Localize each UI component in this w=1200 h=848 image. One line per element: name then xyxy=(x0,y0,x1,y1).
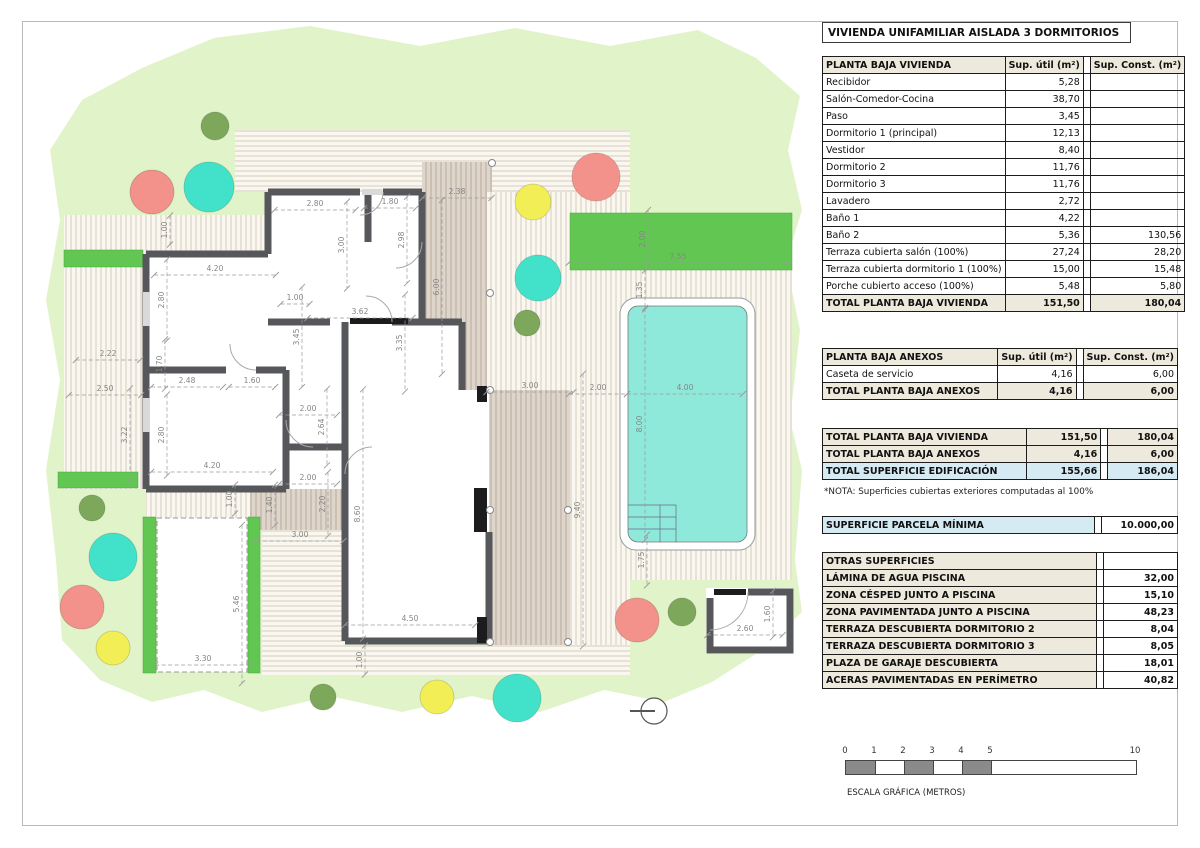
otras-header-value xyxy=(1103,553,1177,570)
sup-const-value: 130,56 xyxy=(1090,227,1184,244)
table-row: Caseta de servicio4,166,00 xyxy=(823,366,1178,383)
dim-label: 4.20 xyxy=(204,461,221,470)
dim-label: 2.80 xyxy=(157,291,166,308)
superficie-value: 8,04 xyxy=(1103,621,1177,638)
dim-label: 8.60 xyxy=(353,505,362,522)
sup-const-value xyxy=(1090,108,1184,125)
table-row: Lavadero2,72 xyxy=(823,193,1185,210)
table-row: PLANTA BAJA ANEXOSSup. útil (m²)Sup. Con… xyxy=(823,349,1178,366)
scale-tick: 3 xyxy=(929,746,934,756)
cell xyxy=(1101,429,1108,446)
sup-util-value: 5,48 xyxy=(1005,278,1083,295)
dim-label: 1.35 xyxy=(635,281,644,298)
total-util: 151,50 xyxy=(1026,429,1100,446)
sup-const-value: 6,00 xyxy=(1083,366,1177,383)
total-label: TOTAL SUPERFICIE EDIFICACIÓN xyxy=(823,463,1027,480)
total-label: TOTAL PLANTA BAJA ANEXOS xyxy=(823,446,1027,463)
table-row: Dormitorio 311,76 xyxy=(823,176,1185,193)
tree-teal xyxy=(493,674,541,722)
total-label: TOTAL PLANTA BAJA VIVIENDA xyxy=(823,295,1006,312)
dim-label: 1.80 xyxy=(382,197,399,206)
tree-olive xyxy=(668,598,696,626)
cell xyxy=(1083,142,1090,159)
dim-label: 2.20 xyxy=(318,495,327,512)
total-const: 180,04 xyxy=(1108,429,1178,446)
table-row: ZONA CÉSPED JUNTO A PISCINA15,10 xyxy=(823,587,1178,604)
terraza-salon xyxy=(487,390,570,645)
tree-yellow xyxy=(420,680,454,714)
post xyxy=(565,507,572,514)
post xyxy=(487,507,494,514)
dim-label: 1.60 xyxy=(763,605,772,622)
cell xyxy=(1076,349,1083,366)
cell xyxy=(1083,176,1090,193)
scale-caption: ESCALA GRÁFICA (METROS) xyxy=(847,788,965,798)
scale-tick: 10 xyxy=(1130,746,1141,756)
sup-util-value: 11,76 xyxy=(1005,176,1083,193)
dim-label: 1.00 xyxy=(225,490,234,507)
table-planta-baja-anexos: PLANTA BAJA ANEXOSSup. útil (m²)Sup. Con… xyxy=(822,348,1178,400)
sheet-title: VIVIENDA UNIFAMILIAR AISLADA 3 DORMITORI… xyxy=(822,22,1131,43)
dim-label: 2.98 xyxy=(397,231,406,248)
table-row: TOTAL PLANTA BAJA ANEXOS4,166,00 xyxy=(823,446,1178,463)
parcela-value: 10.000,00 xyxy=(1102,517,1178,534)
dim-label: 3.00 xyxy=(522,381,539,390)
room-label: Caseta de servicio xyxy=(823,366,998,383)
dim-label: 2.80 xyxy=(157,426,166,443)
sup-const-value xyxy=(1090,193,1184,210)
tree-teal xyxy=(89,533,137,581)
superficie-label: ZONA PAVIMENTADA JUNTO A PISCINA xyxy=(823,604,1097,621)
total-util: 4,16 xyxy=(998,383,1076,400)
superficie-value: 48,23 xyxy=(1103,604,1177,621)
total-label: TOTAL PLANTA BAJA ANEXOS xyxy=(823,383,998,400)
table-row: Dormitorio 211,76 xyxy=(823,159,1185,176)
scale-tick: 5 xyxy=(987,746,992,756)
cell xyxy=(1096,655,1103,672)
tree-teal xyxy=(184,162,234,212)
cell xyxy=(1083,57,1090,74)
sup-util-value: 4,16 xyxy=(998,366,1076,383)
sup-util-value: 8,40 xyxy=(1005,142,1083,159)
sup-util-value: 3,45 xyxy=(1005,108,1083,125)
table-row: OTRAS SUPERFICIES xyxy=(823,553,1178,570)
total-util: 151,50 xyxy=(1005,295,1083,312)
cell xyxy=(1076,366,1083,383)
scale-segment xyxy=(846,761,875,774)
sup-const-value xyxy=(1090,74,1184,91)
dim-label: 1.40 xyxy=(265,496,274,513)
dim-label: 7.55 xyxy=(670,252,687,261)
tree-olive xyxy=(514,310,540,336)
total-label: TOTAL PLANTA BAJA VIVIENDA xyxy=(823,429,1027,446)
dim-label: 3.35 xyxy=(395,334,404,351)
sup-util-value: 5,28 xyxy=(1005,74,1083,91)
col-header-const: Sup. Const. (m²) xyxy=(1090,57,1184,74)
sup-util-value: 11,76 xyxy=(1005,159,1083,176)
table-totales: TOTAL PLANTA BAJA VIVIENDA151,50180,04TO… xyxy=(822,428,1178,480)
total-util: 4,16 xyxy=(1026,446,1100,463)
sup-util-value: 38,70 xyxy=(1005,91,1083,108)
site-plan: 2.382.801.803.002.981.004.202.801.003.62… xyxy=(0,0,820,848)
col-header-const: Sup. Const. (m²) xyxy=(1083,349,1177,366)
table-row: Terraza cubierta salón (100%)27,2428,20 xyxy=(823,244,1185,261)
tree-olive xyxy=(201,112,229,140)
superficie-value: 8,05 xyxy=(1103,638,1177,655)
sup-const-value: 28,20 xyxy=(1090,244,1184,261)
block-header: PLANTA BAJA VIVIENDA xyxy=(823,57,1006,74)
dim-label: 2.00 xyxy=(300,404,317,413)
cell xyxy=(1096,621,1103,638)
dim-label: 2.00 xyxy=(638,230,647,247)
graphic-scale: 01234510 ESCALA GRÁFICA (METROS) xyxy=(845,746,1145,802)
cell xyxy=(1096,672,1103,689)
dim-label: 1.00 xyxy=(160,221,169,238)
sup-const-value xyxy=(1090,210,1184,227)
scale-divider xyxy=(904,761,905,774)
table-row: Dormitorio 1 (principal)12,13 xyxy=(823,125,1185,142)
post xyxy=(487,387,494,394)
caseta-floor xyxy=(706,588,794,654)
sup-util-value: 5,36 xyxy=(1005,227,1083,244)
table-row: LÁMINA DE AGUA PISCINA32,00 xyxy=(823,570,1178,587)
cell xyxy=(1083,125,1090,142)
table-row: Terraza cubierta dormitorio 1 (100%)15,0… xyxy=(823,261,1185,278)
dim-label: 1.60 xyxy=(244,376,261,385)
superficie-value: 32,00 xyxy=(1103,570,1177,587)
scale-segment xyxy=(904,761,933,774)
cell xyxy=(1076,383,1083,400)
dim-label: 2.60 xyxy=(737,624,754,633)
room-label: Vestidor xyxy=(823,142,1006,159)
cell xyxy=(1083,74,1090,91)
superficie-label: ZONA CÉSPED JUNTO A PISCINA xyxy=(823,587,1097,604)
tree-red xyxy=(130,170,174,214)
total-const: 180,04 xyxy=(1090,295,1184,312)
otras-header: OTRAS SUPERFICIES xyxy=(823,553,1097,570)
post xyxy=(565,639,572,646)
dim-label: 3.45 xyxy=(292,328,301,345)
cell xyxy=(1096,638,1103,655)
room-label: Paso xyxy=(823,108,1006,125)
table-row: ACERAS PAVIMENTADAS EN PERÍMETRO40,82 xyxy=(823,672,1178,689)
table-row: TOTAL PLANTA BAJA VIVIENDA151,50180,04 xyxy=(823,429,1178,446)
plaza-garaje xyxy=(157,518,247,672)
superficie-label: LÁMINA DE AGUA PISCINA xyxy=(823,570,1097,587)
sup-const-value xyxy=(1090,125,1184,142)
north-symbol-icon xyxy=(630,698,667,724)
table-parcela-minima: SUPERFICIE PARCELA MÍNIMA 10.000,00 xyxy=(822,516,1178,534)
superficie-label: TERRAZA DESCUBIERTA DORMITORIO 3 xyxy=(823,638,1097,655)
table-row: ZONA PAVIMENTADA JUNTO A PISCINA48,23 xyxy=(823,604,1178,621)
dim-label: 9.40 xyxy=(573,501,582,518)
scale-tick: 0 xyxy=(842,746,847,756)
cell xyxy=(1083,193,1090,210)
sup-const-value: 15,48 xyxy=(1090,261,1184,278)
total-const: 186,04 xyxy=(1108,463,1178,480)
post xyxy=(487,290,494,297)
sup-const-value xyxy=(1090,176,1184,193)
cell xyxy=(1101,463,1108,480)
dim-label: 3.00 xyxy=(292,530,309,539)
room-label: Lavadero xyxy=(823,193,1006,210)
table-row: TERRAZA DESCUBIERTA DORMITORIO 28,04 xyxy=(823,621,1178,638)
scale-segment xyxy=(962,761,991,774)
superficie-label: TERRAZA DESCUBIERTA DORMITORIO 2 xyxy=(823,621,1097,638)
cell xyxy=(1083,210,1090,227)
tree-red xyxy=(60,585,104,629)
cell xyxy=(1083,227,1090,244)
total-util: 155,66 xyxy=(1026,463,1100,480)
superficie-value: 40,82 xyxy=(1103,672,1177,689)
dim-label: 2.00 xyxy=(300,473,317,482)
block-header: PLANTA BAJA ANEXOS xyxy=(823,349,998,366)
cell xyxy=(1096,587,1103,604)
sup-const-value xyxy=(1090,159,1184,176)
post xyxy=(487,639,494,646)
tree-olive xyxy=(79,495,105,521)
superficie-value: 18,01 xyxy=(1103,655,1177,672)
sup-const-value xyxy=(1090,142,1184,159)
table-planta-baja-vivienda: PLANTA BAJA VIVIENDASup. útil (m²)Sup. C… xyxy=(822,56,1185,312)
dim-label: 2.50 xyxy=(97,384,114,393)
post xyxy=(489,160,496,167)
tree-red xyxy=(615,598,659,642)
table-row: Recibidor5,28 xyxy=(823,74,1185,91)
cell xyxy=(1096,604,1103,621)
room-label: Salón-Comedor-Cocina xyxy=(823,91,1006,108)
scale-tick: 2 xyxy=(900,746,905,756)
table-row: Salón-Comedor-Cocina38,70 xyxy=(823,91,1185,108)
table-row: PLAZA DE GARAJE DESCUBIERTA18,01 xyxy=(823,655,1178,672)
drawing-sheet: { "title": "VIVIENDA UNIFAMILIAR AISLADA… xyxy=(0,0,1200,848)
dim-label: 6.00 xyxy=(432,278,441,295)
cell xyxy=(1096,553,1103,570)
dim-label: 2.22 xyxy=(100,349,117,358)
cell xyxy=(1096,570,1103,587)
table-row: TOTAL PLANTA BAJA ANEXOS4,166,00 xyxy=(823,383,1178,400)
superficie-label: PLAZA DE GARAJE DESCUBIERTA xyxy=(823,655,1097,672)
tree-teal xyxy=(515,255,561,301)
room-label: Recibidor xyxy=(823,74,1006,91)
dim-label: 4.20 xyxy=(207,264,224,273)
dim-label: 8.00 xyxy=(635,415,644,432)
table-row: TERRAZA DESCUBIERTA DORMITORIO 38,05 xyxy=(823,638,1178,655)
sup-util-value: 27,24 xyxy=(1005,244,1083,261)
dim-label: 4.50 xyxy=(402,614,419,623)
table-row: Vestidor8,40 xyxy=(823,142,1185,159)
superficie-label: ACERAS PAVIMENTADAS EN PERÍMETRO xyxy=(823,672,1097,689)
table-row: Paso3,45 xyxy=(823,108,1185,125)
dim-label: 2.00 xyxy=(590,383,607,392)
room-label: Terraza cubierta dormitorio 1 (100%) xyxy=(823,261,1006,278)
sup-util-value: 4,22 xyxy=(1005,210,1083,227)
total-const: 6,00 xyxy=(1083,383,1177,400)
total-const: 6,00 xyxy=(1108,446,1178,463)
dim-label: 3.30 xyxy=(195,654,212,663)
sup-util-value: 12,13 xyxy=(1005,125,1083,142)
tree-olive xyxy=(310,684,336,710)
table-row: Baño 25,36130,56 xyxy=(823,227,1185,244)
cell xyxy=(1083,244,1090,261)
dim-label: 1.00 xyxy=(355,651,364,668)
room-label: Dormitorio 1 (principal) xyxy=(823,125,1006,142)
dim-label: 2.80 xyxy=(307,199,324,208)
dim-label: 2.48 xyxy=(179,376,196,385)
scale-divider xyxy=(933,761,934,774)
room-label: Dormitorio 3 xyxy=(823,176,1006,193)
cell xyxy=(1083,261,1090,278)
cell xyxy=(1083,278,1090,295)
col-header-util: Sup. útil (m²) xyxy=(998,349,1076,366)
dim-label: 1.75 xyxy=(637,551,646,568)
table-row: TOTAL SUPERFICIE EDIFICACIÓN155,66186,04 xyxy=(823,463,1178,480)
scale-tick: 1 xyxy=(871,746,876,756)
dim-label: 3.00 xyxy=(337,236,346,253)
scale-tick-labels: 01234510 xyxy=(845,746,1145,757)
col-header-util: Sup. útil (m²) xyxy=(1005,57,1083,74)
room-label: Porche cubierto acceso (100%) xyxy=(823,278,1006,295)
room-label: Baño 1 xyxy=(823,210,1006,227)
table-otras-superficies: OTRAS SUPERFICIESLÁMINA DE AGUA PISCINA3… xyxy=(822,552,1178,689)
cell xyxy=(1083,295,1090,312)
cell xyxy=(1083,91,1090,108)
scale-divider xyxy=(962,761,963,774)
zona-cesped-piscina xyxy=(570,213,792,270)
table-row: Baño 14,22 xyxy=(823,210,1185,227)
dim-label: 2.64 xyxy=(317,418,326,435)
cell xyxy=(1101,446,1108,463)
tree-yellow xyxy=(96,631,130,665)
table-row: Porche cubierto acceso (100%)5,485,80 xyxy=(823,278,1185,295)
room-label: Baño 2 xyxy=(823,227,1006,244)
sup-const-value: 5,80 xyxy=(1090,278,1184,295)
sup-util-value: 2,72 xyxy=(1005,193,1083,210)
dim-label: 1.00 xyxy=(287,293,304,302)
scale-tick: 4 xyxy=(958,746,963,756)
room-label: Dormitorio 2 xyxy=(823,159,1006,176)
superficie-value: 15,10 xyxy=(1103,587,1177,604)
dim-label: 4.00 xyxy=(677,383,694,392)
dim-label: 1.70 xyxy=(155,355,164,372)
dim-label: 3.22 xyxy=(120,426,129,443)
parcela-label: SUPERFICIE PARCELA MÍNIMA xyxy=(823,517,1095,534)
dim-label: 5.46 xyxy=(232,595,241,612)
sup-const-value xyxy=(1090,91,1184,108)
cell xyxy=(1083,108,1090,125)
dim-label: 2.38 xyxy=(449,187,466,196)
scale-divider xyxy=(991,761,992,774)
cell xyxy=(1083,159,1090,176)
scale-divider xyxy=(875,761,876,774)
room-label: Terraza cubierta salón (100%) xyxy=(823,244,1006,261)
dim-label: 3.62 xyxy=(352,307,369,316)
tree-yellow xyxy=(515,184,551,220)
scale-bar xyxy=(845,760,1137,775)
tree-red xyxy=(572,153,620,201)
table-row: PLANTA BAJA VIVIENDASup. útil (m²)Sup. C… xyxy=(823,57,1185,74)
sup-util-value: 15,00 xyxy=(1005,261,1083,278)
table-row: TOTAL PLANTA BAJA VIVIENDA151,50180,04 xyxy=(823,295,1185,312)
nota-text: *NOTA: Superficies cubiertas exteriores … xyxy=(824,487,1174,497)
